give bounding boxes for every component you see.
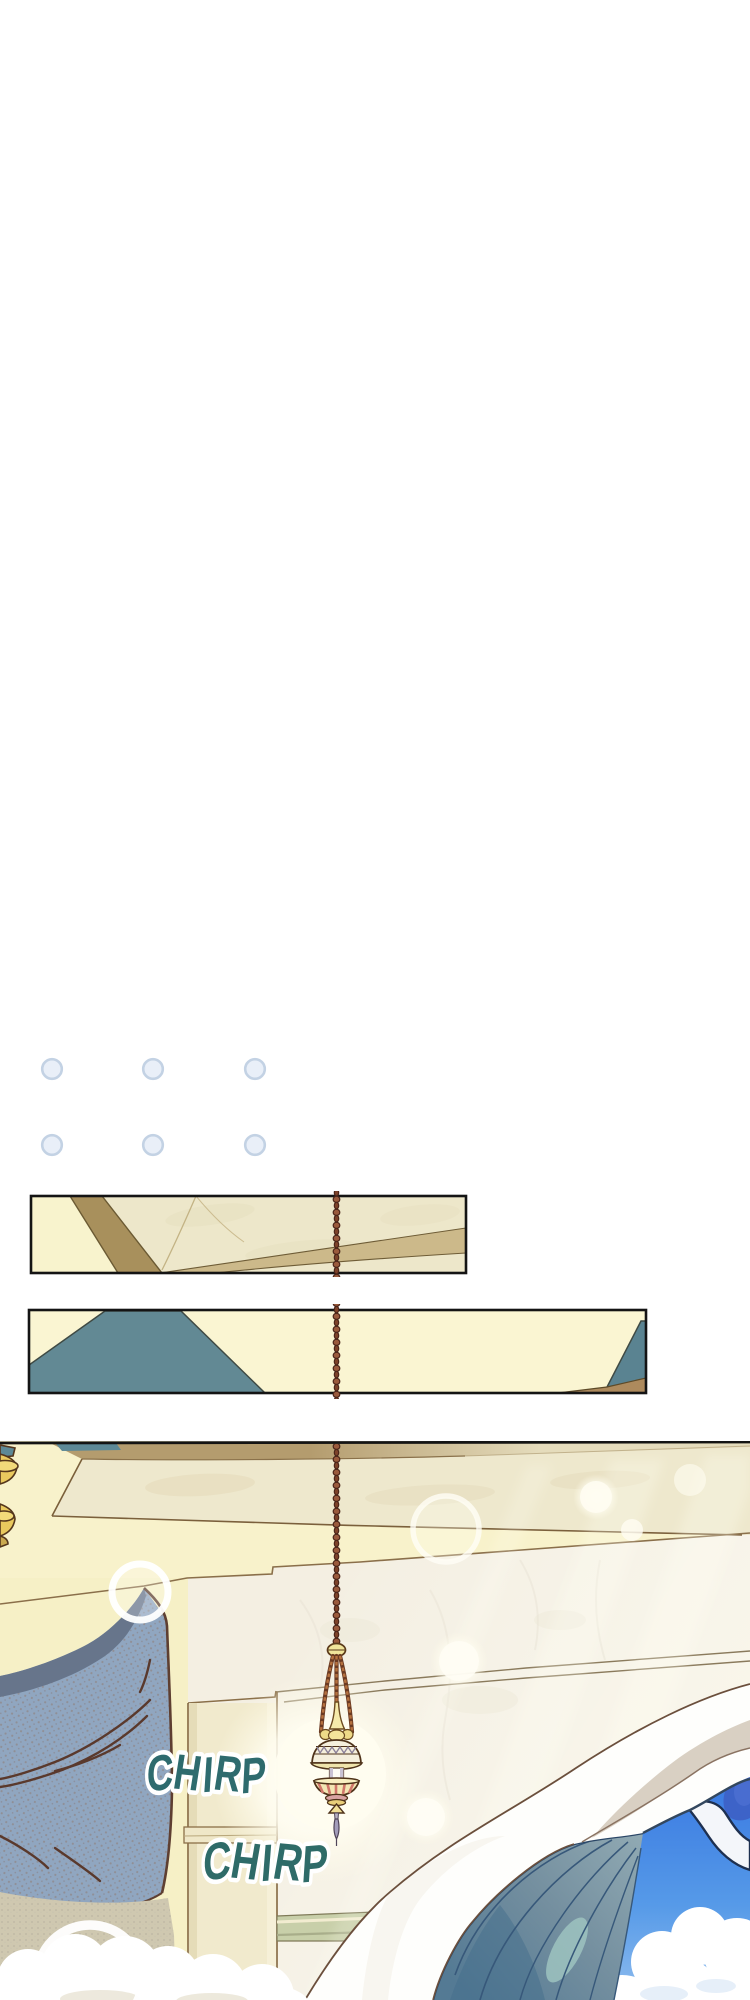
svg-text:P: P <box>300 1833 330 1894</box>
svg-text:P: P <box>240 1747 267 1805</box>
svg-text:C: C <box>146 1744 174 1804</box>
